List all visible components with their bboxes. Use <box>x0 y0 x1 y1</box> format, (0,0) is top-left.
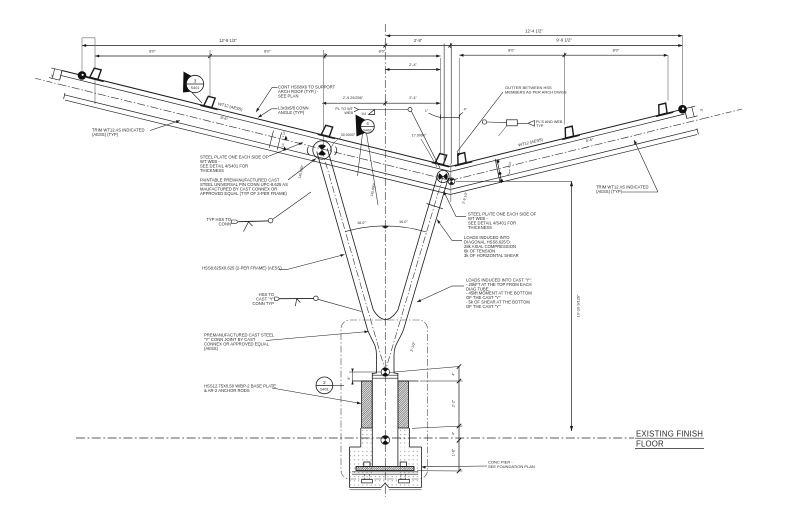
svg-text:1/4: 1/4 <box>361 112 366 116</box>
svg-text:S401: S401 <box>363 129 372 133</box>
svg-text:17.0000°: 17.0000° <box>412 134 427 138</box>
svg-text:(AESS) (TYP): (AESS) (TYP) <box>92 132 119 137</box>
svg-text:SEE FOUNDATION PLAN: SEE FOUNDATION PLAN <box>488 464 535 469</box>
svg-text:CONN TYP: CONN TYP <box>252 301 274 306</box>
svg-text:SEE PLAN: SEE PLAN <box>278 94 298 99</box>
svg-text:FLOOR: FLOOR <box>636 440 664 449</box>
svg-text:9'-9 1/2": 9'-9 1/2" <box>556 38 572 43</box>
svg-text:12'-4 1/2": 12'-4 1/2" <box>525 28 543 33</box>
svg-text:2'-9 29/256": 2'-9 29/256" <box>343 96 364 100</box>
svg-text:12'-9 1/2": 12'-9 1/2" <box>219 38 237 43</box>
svg-text:CONN: CONN <box>219 222 231 227</box>
svg-text:WEB: WEB <box>344 111 353 115</box>
svg-text:ANGLE (TYP): ANGLE (TYP) <box>278 110 305 115</box>
svg-text:3k OF HORIZONTAL SHEAR: 3k OF HORIZONTAL SHEAR <box>464 253 519 258</box>
svg-text:3: 3 <box>194 79 197 84</box>
svg-text:(AESS) (TYP): (AESS) (TYP) <box>596 189 623 194</box>
svg-text:HSS8.625X0.625 (2-PER FRAME) (: HSS8.625X0.625 (2-PER FRAME) (AESS) <box>202 266 282 271</box>
svg-text:MEMBERS AS PER ARCH DWGS: MEMBERS AS PER ARCH DWGS <box>505 89 567 94</box>
svg-text:(AESS): (AESS) <box>204 346 219 351</box>
svg-text:2: 2 <box>323 380 326 385</box>
svg-text:4: 4 <box>366 121 369 126</box>
svg-text:8'0": 8'0" <box>379 49 386 54</box>
svg-text:1'-6": 1'-6" <box>452 448 456 456</box>
svg-text:8'0": 8'0" <box>149 49 156 54</box>
svg-text:10'-10 9/128": 10'-10 9/128" <box>576 294 581 318</box>
svg-text:2'-4": 2'-4" <box>409 62 418 67</box>
svg-text:8'0": 8'0" <box>264 49 271 54</box>
svg-text:16.0°: 16.0° <box>399 220 408 224</box>
svg-text:2'-9": 2'-9" <box>414 38 423 43</box>
svg-text:16.0°: 16.0° <box>357 221 366 225</box>
svg-text:S401: S401 <box>320 388 329 392</box>
svg-text:OF THE CAST "Y": OF THE CAST "Y" <box>466 304 501 309</box>
svg-text:2'-2": 2'-2" <box>452 399 456 407</box>
svg-text:THICKNESS: THICKNESS <box>468 225 492 230</box>
svg-text:8'0": 8'0" <box>613 48 620 53</box>
svg-text:APPROVED EQUAL (TYP OF 2-PER F: APPROVED EQUAL (TYP OF 2-PER FRAME) <box>200 191 287 196</box>
svg-text:& AR-2 ANCHOR RODS: & AR-2 ANCHOR RODS <box>204 388 250 393</box>
svg-text:S401: S401 <box>191 86 200 90</box>
svg-text:EXISTING FINISH: EXISTING FINISH <box>636 429 703 438</box>
svg-text:8'0": 8'0" <box>508 48 515 53</box>
svg-text:THICKNESS: THICKNESS <box>200 168 224 173</box>
svg-text:30.0000°: 30.0000° <box>341 133 356 137</box>
svg-text:TYP: TYP <box>536 124 544 128</box>
svg-text:2'-4": 2'-4" <box>409 96 417 100</box>
